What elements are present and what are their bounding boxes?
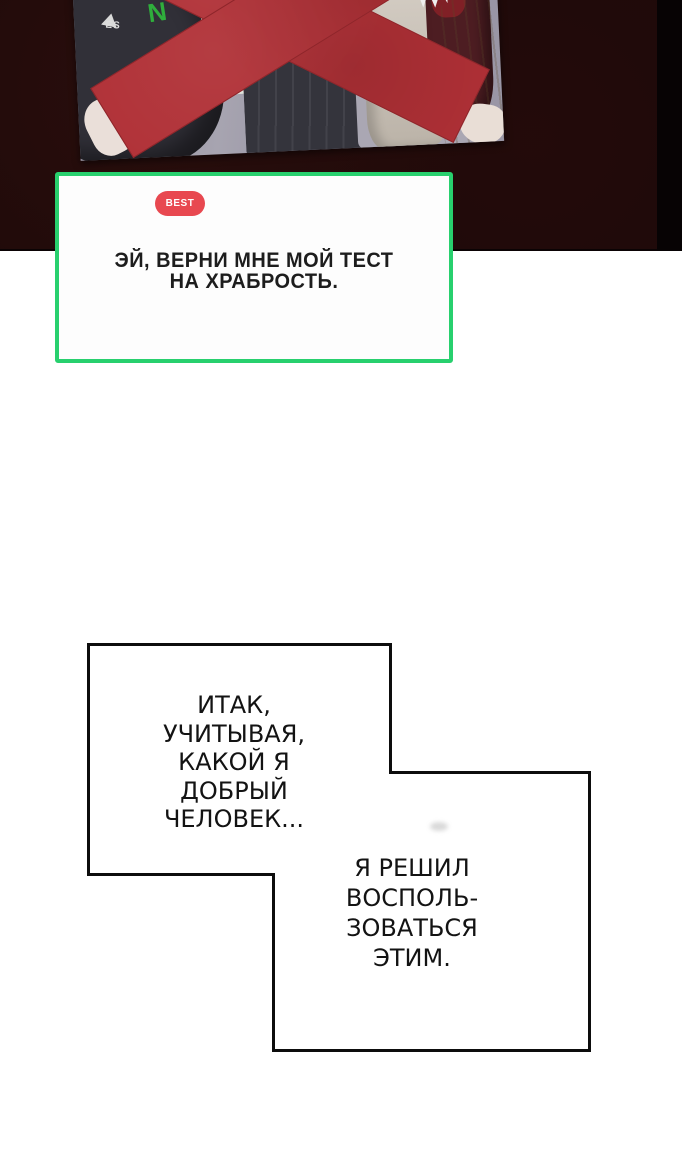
speech-line: Я РЕШИЛ [273,853,551,883]
best-comment-line: НА ХРАБРОСТЬ. [69,271,440,292]
speech-line: ЗОВАТЬСЯ [273,913,551,943]
speech-line: ЧЕЛОВЕК... [88,805,380,834]
jacket-text: ES [105,21,121,32]
speech-line: ИТАК, [88,691,380,720]
best-comment-text: ЭЙ, ВЕРНИ МНЕ МОЙ ТЕСТ НА ХРАБРОСТЬ. [69,250,440,292]
best-badge: BEST [155,191,205,216]
webtoon-page: N ES BEST ЭЙ, ВЕРНИ МНЕ МОЙ ТЕСТ НА ХРАБ… [0,0,682,1159]
speech-line: УЧИТЫВАЯ, [88,720,380,749]
manga-panel-photo: N ES [70,0,504,161]
speech-line: ВОСПОЛЬ- [273,883,551,913]
paper-smudge [430,822,448,831]
speech-line: ЭТИМ. [273,943,551,973]
speech-bubble-text-2: Я РЕШИЛ ВОСПОЛЬ- ЗОВАТЬСЯ ЭТИМ. [273,853,551,973]
black-edge-strip [657,0,682,251]
jacket-letter: N [146,0,168,26]
best-badge-label: BEST [166,198,195,209]
speech-line: ДОБРЫЙ [88,777,380,806]
speech-bubble-text-1: ИТАК, УЧИТЫВАЯ, КАКОЙ Я ДОБРЫЙ ЧЕЛОВЕК..… [88,691,380,834]
speech-line: КАКОЙ Я [88,748,380,777]
best-comment-bubble[interactable]: BEST ЭЙ, ВЕРНИ МНЕ МОЙ ТЕСТ НА ХРАБРОСТЬ… [55,172,453,363]
best-comment-line: ЭЙ, ВЕРНИ МНЕ МОЙ ТЕСТ [69,250,440,271]
